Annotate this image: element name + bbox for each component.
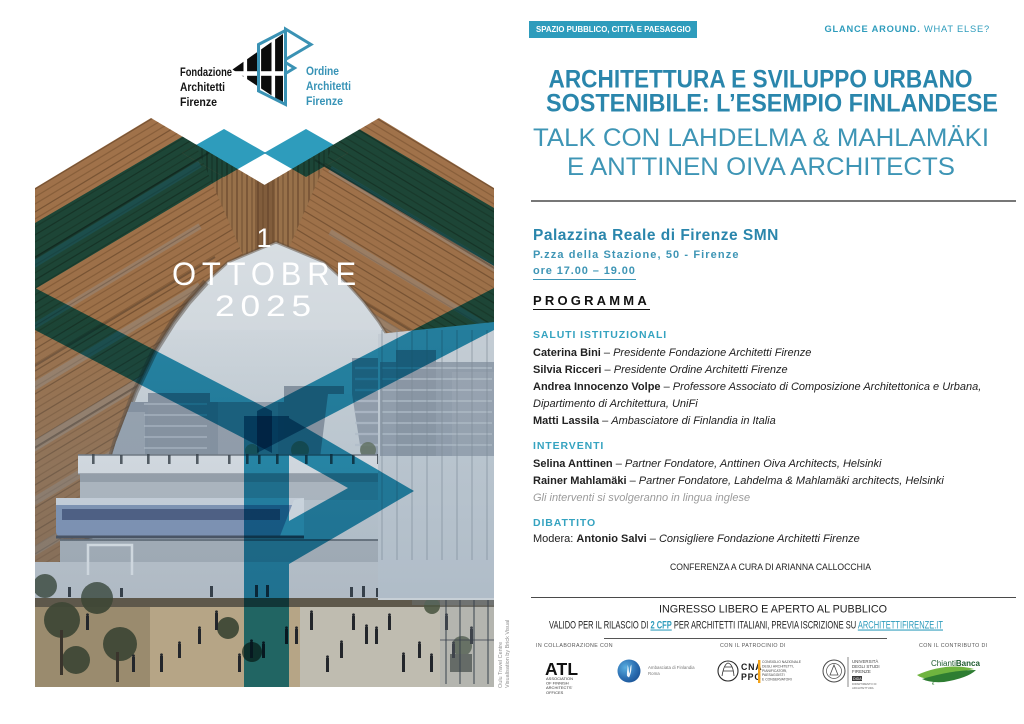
- svg-text:Roma: Roma: [648, 671, 660, 676]
- svg-text:Ordine: Ordine: [306, 64, 339, 78]
- svg-text:2025: 2025: [215, 290, 317, 323]
- svg-text:Firenze: Firenze: [306, 94, 343, 108]
- svg-text:Visualisation by Brick Visual: Visualisation by Brick Visual: [505, 620, 511, 688]
- svg-text:TALK CON LAHDELMA & MAHLAMÄKI: TALK CON LAHDELMA & MAHLAMÄKI: [533, 124, 989, 152]
- svg-text:Firenze: Firenze: [180, 95, 217, 109]
- svg-text:Ambasciata di Finlandia: Ambasciata di Finlandia: [648, 665, 695, 670]
- svg-text:Architetti: Architetti: [306, 79, 351, 93]
- svg-text:Architetti: Architetti: [180, 80, 225, 94]
- svg-text:SOSTENIBILE: L’ESEMPIO FINLAND: SOSTENIBILE: L’ESEMPIO FINLANDESE: [546, 90, 998, 118]
- svg-text:1: 1: [256, 223, 271, 253]
- svg-text:FIRENZE: FIRENZE: [852, 669, 871, 674]
- svg-text:DEGLI ARCHITETTI,: DEGLI ARCHITETTI,: [762, 664, 794, 668]
- svg-text:OTTOBRE: OTTOBRE: [172, 256, 362, 292]
- svg-text:PIANIFICATORI,: PIANIFICATORI,: [762, 669, 787, 673]
- svg-text:DIDA: DIDA: [853, 677, 862, 681]
- svg-text:Fondazione: Fondazione: [180, 65, 232, 79]
- svg-text:PAESAGGISTI: PAESAGGISTI: [762, 673, 785, 677]
- svg-text:CONSIGLIO NAZIONALE: CONSIGLIO NAZIONALE: [762, 660, 802, 664]
- svg-text:Oulu Travel Centre: Oulu Travel Centre: [498, 642, 504, 688]
- svg-text:E CONSERVATORI: E CONSERVATORI: [762, 678, 792, 682]
- svg-text:E ANTTINEN OIVA ARCHITECTS: E ANTTINEN OIVA ARCHITECTS: [567, 153, 955, 181]
- svg-text:ARCHITETTURA: ARCHITETTURA: [852, 686, 874, 690]
- svg-text:OFFICES: OFFICES: [546, 690, 564, 695]
- svg-text:CONFERENZA A CURA DI ARIANNA: CONFERENZA A CURA DI ARIANNA CALLOCCHIA: [670, 562, 872, 573]
- svg-text:INGRESSO LIBERO E APERTO AL PU: INGRESSO LIBERO E APERTO AL PUBBLICO: [659, 604, 887, 616]
